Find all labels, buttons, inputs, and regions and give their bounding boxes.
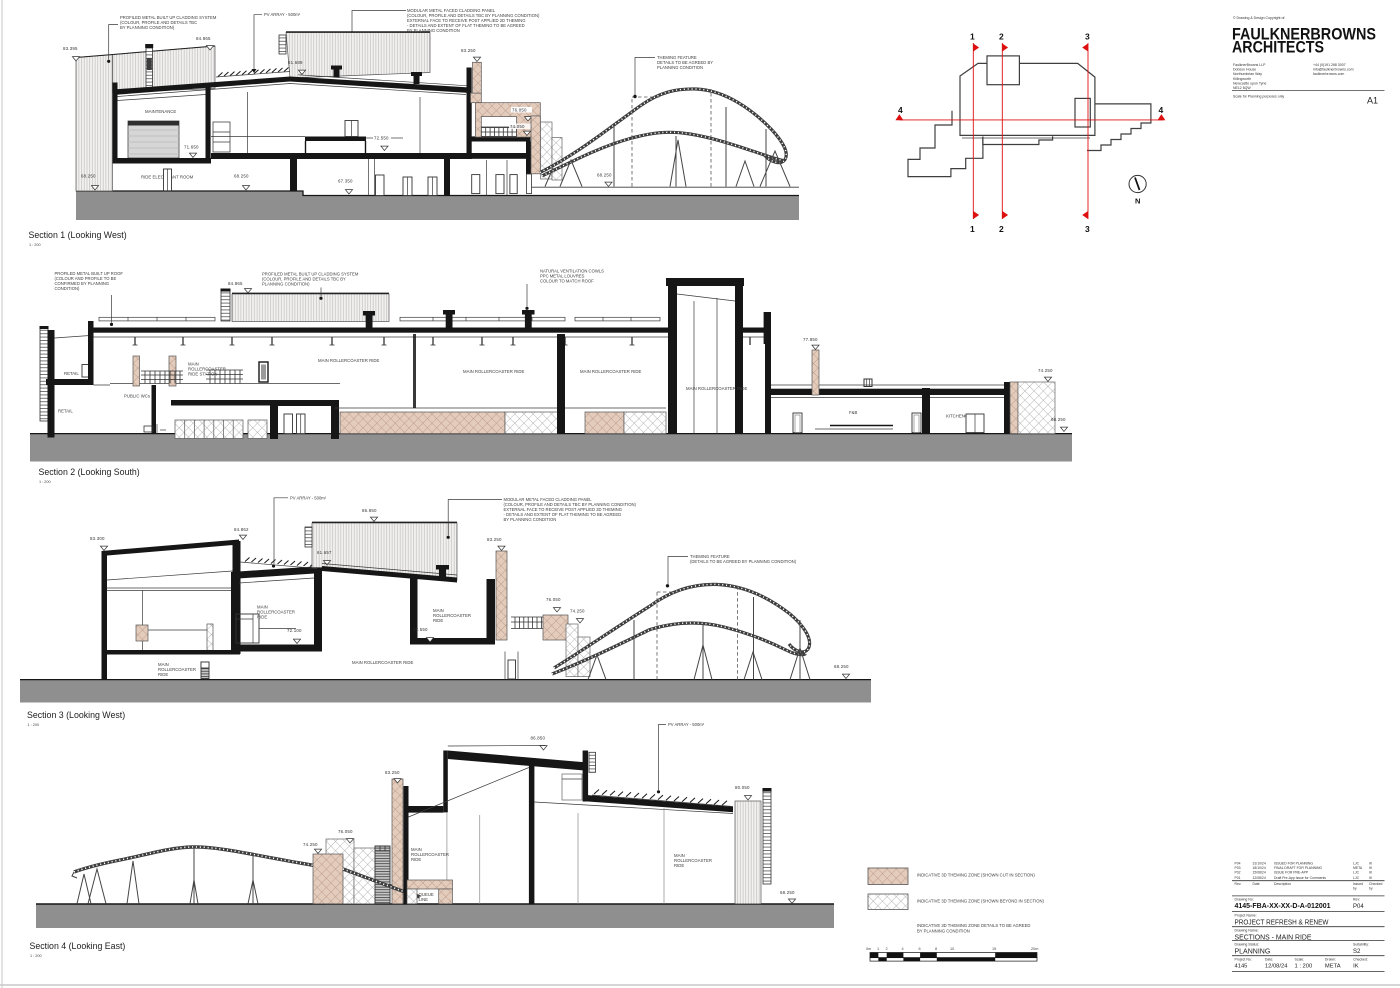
- svg-text:74.250: 74.250: [570, 609, 585, 614]
- svg-text:6: 6: [919, 947, 921, 951]
- svg-text:FINAL DRAFT FOR PLANNING: FINAL DRAFT FOR PLANNING: [1274, 866, 1322, 870]
- svg-text:77.850: 77.850: [803, 337, 818, 342]
- svg-text:P03: P03: [1235, 866, 1241, 870]
- svg-text:MAIN ROLLERCOASTER RIDE: MAIN ROLLERCOASTER RIDE: [686, 386, 747, 391]
- svg-text:2: 2: [999, 32, 1004, 42]
- svg-text:INDICATIVE 3D THEMING ZONE (SH: INDICATIVE 3D THEMING ZONE (SHOWN BEYOND…: [917, 899, 1044, 904]
- svg-text:4145: 4145: [1235, 964, 1248, 970]
- svg-text:15/08/24: 15/08/24: [1253, 871, 1266, 875]
- svg-text:Rev:: Rev:: [1353, 898, 1360, 902]
- svg-text:PV ARRAY - 500m²: PV ARRAY - 500m²: [668, 722, 705, 727]
- svg-text:P01: P01: [1235, 876, 1241, 880]
- svg-text:Draft Pre-App Issue for Commen: Draft Pre-App Issue for Comments: [1274, 876, 1326, 880]
- svg-text:1 : 200: 1 : 200: [28, 723, 40, 727]
- svg-text:MAIN ROLLERCOASTER RIDE: MAIN ROLLERCOASTER RIDE: [580, 369, 641, 374]
- svg-text:ARCHITECTS: ARCHITECTS: [1232, 39, 1324, 57]
- svg-text:83.250: 83.250: [385, 770, 400, 775]
- svg-text:83.300: 83.300: [90, 536, 105, 541]
- svg-text:LJC: LJC: [1353, 861, 1360, 865]
- svg-text:Section 1 (Looking West): Section 1 (Looking West): [29, 230, 127, 240]
- svg-text:15: 15: [992, 947, 996, 951]
- svg-text:Drawn:: Drawn:: [1325, 957, 1336, 961]
- svg-text:RETAIL: RETAIL: [64, 371, 79, 376]
- svg-text:by: by: [1353, 887, 1357, 891]
- svg-text:72.550: 72.550: [413, 627, 428, 632]
- svg-text:1 : 200: 1 : 200: [1295, 964, 1313, 970]
- svg-text:1: 1: [970, 32, 975, 42]
- svg-text:P04: P04: [1235, 861, 1241, 865]
- svg-text:4: 4: [1159, 105, 1164, 115]
- svg-text:S2: S2: [1353, 949, 1361, 955]
- svg-text:20m: 20m: [1031, 947, 1038, 951]
- svg-text:N: N: [1135, 197, 1140, 206]
- svg-text:Project No:: Project No:: [1235, 957, 1252, 961]
- svg-text:F&B: F&B: [849, 410, 857, 415]
- svg-text:Scale for Planning purposes on: Scale for Planning purposes only: [1233, 95, 1284, 99]
- svg-text:MAIN ROLLERCOASTER RIDE: MAIN ROLLERCOASTER RIDE: [463, 369, 524, 374]
- svg-text:LJC: LJC: [1353, 876, 1360, 880]
- svg-text:© Drawing & Design Copyright o: © Drawing & Design Copyright of:: [1233, 16, 1285, 20]
- svg-text:2: 2: [886, 947, 888, 951]
- svg-text:74.250: 74.250: [1038, 368, 1053, 373]
- svg-text:PLANNING: PLANNING: [1235, 949, 1271, 956]
- svg-text:MAIN ROLLERCOASTER RIDE: MAIN ROLLERCOASTER RIDE: [352, 660, 413, 665]
- svg-text:68.250: 68.250: [234, 174, 249, 179]
- svg-text:ISSUED FOR PLANNING: ISSUED FOR PLANNING: [1274, 861, 1313, 865]
- svg-text:0m: 0m: [866, 947, 871, 951]
- svg-text:META: META: [1353, 866, 1363, 870]
- svg-text:12/08/24: 12/08/24: [1265, 964, 1288, 970]
- svg-text:8: 8: [935, 947, 937, 951]
- svg-text:31/10/24: 31/10/24: [1253, 861, 1266, 865]
- svg-text:12/08/24: 12/08/24: [1253, 876, 1266, 880]
- svg-text:4: 4: [898, 105, 903, 115]
- svg-text:A1: A1: [1367, 96, 1378, 106]
- svg-text:72.550: 72.550: [374, 136, 389, 141]
- svg-text:Section 4 (Looking East): Section 4 (Looking East): [30, 941, 126, 951]
- svg-text:81.689: 81.689: [288, 60, 303, 65]
- svg-text:1: 1: [970, 224, 975, 234]
- svg-text:Section 3 (Looking West): Section 3 (Looking West): [27, 710, 125, 720]
- svg-text:18/10/24: 18/10/24: [1253, 866, 1266, 870]
- svg-text:ISSUE FOR PRE-APP: ISSUE FOR PRE-APP: [1274, 871, 1309, 875]
- svg-text:Rev.: Rev.: [1235, 882, 1242, 886]
- svg-text:MAINTENANCE: MAINTENANCE: [145, 109, 176, 114]
- svg-text:Checked:: Checked:: [1353, 957, 1368, 961]
- svg-text:IK: IK: [1353, 964, 1359, 970]
- svg-text:86.850: 86.850: [531, 736, 546, 741]
- svg-text:3: 3: [1085, 32, 1090, 42]
- svg-text:1: 1: [877, 947, 879, 951]
- svg-text:74.250: 74.250: [303, 842, 318, 847]
- svg-text:83.250: 83.250: [461, 48, 476, 53]
- svg-text:Issued: Issued: [1353, 882, 1363, 886]
- svg-text:76.050: 76.050: [546, 597, 561, 602]
- svg-text:1 : 200: 1 : 200: [39, 480, 51, 484]
- svg-text:P04: P04: [1353, 904, 1364, 910]
- svg-text:Suitability:: Suitability:: [1353, 942, 1369, 946]
- svg-text:Section 2 (Looking South): Section 2 (Looking South): [39, 467, 140, 477]
- svg-text:2: 2: [999, 224, 1004, 234]
- svg-text:83.250: 83.250: [487, 537, 502, 542]
- svg-text:PROJECT REFRESH & RENEW: PROJECT REFRESH & RENEW: [1235, 919, 1329, 926]
- svg-text:Drawing No:: Drawing No:: [1235, 898, 1254, 902]
- svg-text:76.050: 76.050: [338, 829, 353, 834]
- svg-text:84.865: 84.865: [196, 36, 211, 41]
- svg-text:84.862: 84.862: [234, 527, 249, 532]
- svg-text:LJC: LJC: [1353, 871, 1360, 875]
- svg-text:4: 4: [902, 947, 904, 951]
- svg-text:Date: Date: [1253, 882, 1260, 886]
- svg-text:1 : 200: 1 : 200: [29, 243, 41, 247]
- svg-text:84.865: 84.865: [228, 281, 243, 286]
- svg-text:by: by: [1369, 887, 1373, 891]
- svg-text:Checked: Checked: [1369, 882, 1382, 886]
- svg-text:61.657: 61.657: [317, 550, 332, 555]
- svg-text:71.650: 71.650: [184, 145, 199, 150]
- svg-text:68.250: 68.250: [780, 890, 795, 895]
- svg-text:Project Name:: Project Name:: [1235, 913, 1257, 917]
- svg-text:68.250: 68.250: [597, 173, 612, 178]
- svg-text:3: 3: [1085, 224, 1090, 234]
- svg-text:1 : 200: 1 : 200: [30, 954, 42, 958]
- svg-text:68.250: 68.250: [81, 174, 96, 179]
- svg-text:P02: P02: [1235, 871, 1241, 875]
- svg-text:10: 10: [950, 947, 954, 951]
- svg-text:Description: Description: [1274, 882, 1291, 886]
- svg-text:Drawing Status:: Drawing Status:: [1235, 942, 1260, 946]
- svg-text:PV ARRAY - 500m²: PV ARRAY - 500m²: [264, 12, 301, 17]
- svg-text:MAIN ROLLERCOASTER RIDE: MAIN ROLLERCOASTER RIDE: [318, 358, 379, 363]
- svg-text:PV ARRAY - 500m²: PV ARRAY - 500m²: [290, 496, 327, 501]
- svg-text:74.050: 74.050: [510, 124, 525, 129]
- svg-text:4145-FBA-XX-XX-D-A-012001: 4145-FBA-XX-XX-D-A-012001: [1235, 903, 1331, 910]
- svg-text:INDICATIVE 3D THEMING ZONE (SH: INDICATIVE 3D THEMING ZONE (SHOWN CUT IN…: [917, 873, 1035, 878]
- svg-text:Date:: Date:: [1265, 957, 1273, 961]
- svg-text:META: META: [1325, 964, 1341, 970]
- svg-text:68.250: 68.250: [1051, 417, 1066, 422]
- svg-text:Drawing Name:: Drawing Name:: [1235, 928, 1259, 932]
- svg-text:PUBLIC WCs: PUBLIC WCs: [124, 394, 150, 399]
- svg-text:68.250: 68.250: [834, 664, 849, 669]
- svg-text:KITCHEN: KITCHEN: [946, 414, 965, 419]
- svg-text:67.350: 67.350: [338, 179, 353, 184]
- svg-text:Scale:: Scale:: [1295, 957, 1305, 961]
- svg-text:86.850: 86.850: [362, 508, 377, 513]
- svg-text:RETAIL: RETAIL: [58, 409, 73, 414]
- svg-text:83.395: 83.395: [63, 46, 78, 51]
- svg-text:80.050: 80.050: [735, 785, 750, 790]
- svg-text:76.050: 76.050: [512, 108, 527, 113]
